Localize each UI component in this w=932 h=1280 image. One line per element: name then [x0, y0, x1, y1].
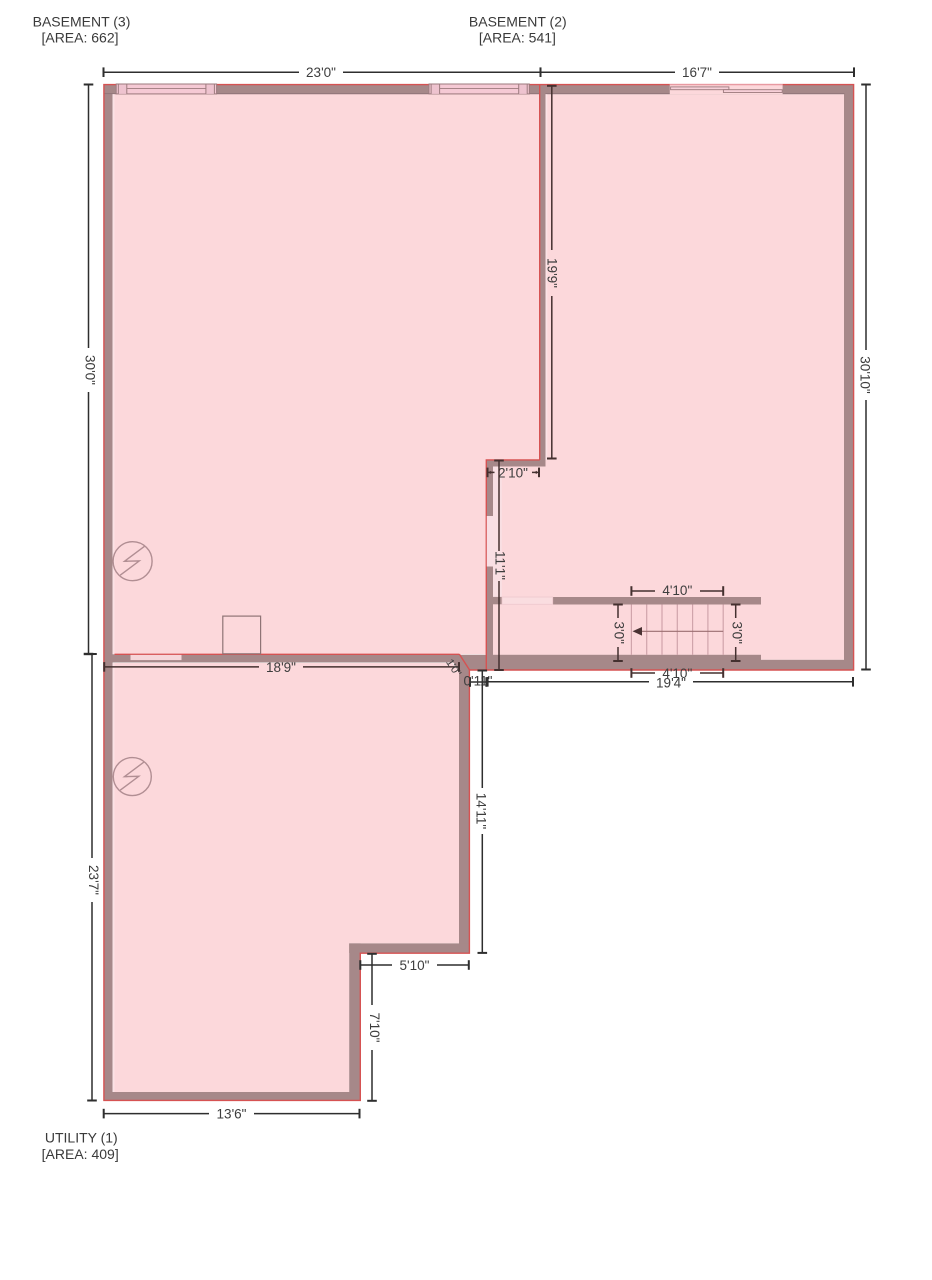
svg-text:19'9": 19'9" — [545, 258, 560, 288]
svg-text:23'7": 23'7" — [86, 865, 101, 895]
svg-text:BASEMENT (2): BASEMENT (2) — [469, 14, 567, 30]
svg-text:13'6": 13'6" — [217, 1107, 247, 1122]
svg-text:30'0": 30'0" — [83, 355, 98, 385]
svg-text:7'10": 7'10" — [367, 1013, 382, 1043]
svg-text:18'9": 18'9" — [266, 660, 296, 675]
svg-text:[AREA: 662]: [AREA: 662] — [41, 30, 118, 46]
svg-text:11'1": 11'1" — [492, 551, 507, 580]
svg-text:[AREA: 409]: [AREA: 409] — [42, 1146, 119, 1162]
svg-text:3'0": 3'0" — [612, 622, 627, 645]
svg-text:BASEMENT (3): BASEMENT (3) — [33, 14, 131, 30]
svg-text:14'11": 14'11" — [474, 793, 489, 830]
svg-text:4'10": 4'10" — [662, 583, 692, 598]
svg-text:30'10": 30'10" — [858, 356, 873, 394]
svg-text:19'4": 19'4" — [656, 675, 686, 690]
svg-text:UTILITY (1): UTILITY (1) — [45, 1129, 118, 1145]
svg-text:3'0": 3'0" — [729, 622, 744, 645]
svg-text:2'10": 2'10" — [498, 465, 528, 480]
svg-text:23'0": 23'0" — [306, 65, 336, 80]
svg-text:[AREA: 541]: [AREA: 541] — [479, 30, 556, 46]
svg-text:5'10": 5'10" — [400, 958, 430, 973]
svg-text:16'7": 16'7" — [682, 65, 712, 80]
